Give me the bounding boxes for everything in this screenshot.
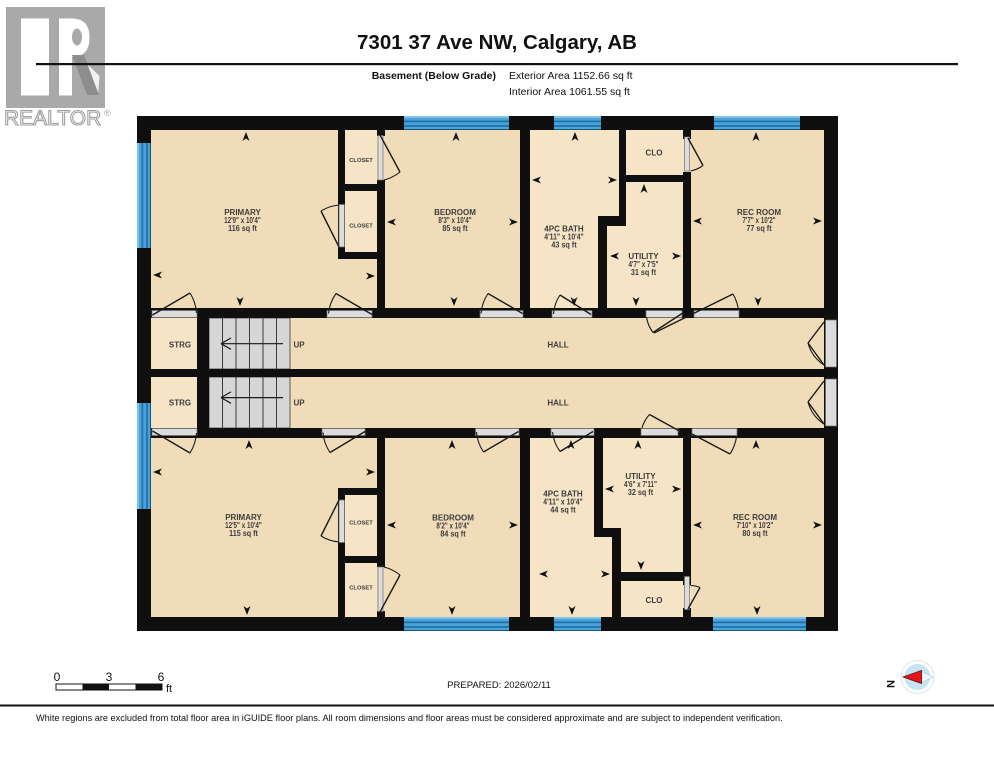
svg-text:77 sq ft: 77 sq ft: [746, 224, 771, 233]
svg-text:PREPARED: 2026/02/11: PREPARED: 2026/02/11: [447, 680, 551, 691]
svg-text:84 sq ft: 84 sq ft: [440, 530, 465, 539]
svg-text:85 sq ft: 85 sq ft: [442, 224, 467, 233]
svg-text:0: 0: [54, 670, 61, 684]
svg-text:HALL: HALL: [547, 399, 568, 408]
svg-text:®: ®: [104, 108, 111, 118]
svg-text:Basement (Below Grade): Basement (Below Grade): [372, 70, 496, 82]
svg-text:3: 3: [106, 670, 113, 684]
svg-text:43 sq ft: 43 sq ft: [551, 241, 576, 250]
svg-text:REALTOR: REALTOR: [4, 107, 101, 130]
svg-text:80 sq ft: 80 sq ft: [742, 529, 767, 538]
svg-text:CLOSET: CLOSET: [349, 158, 373, 164]
svg-text:CLO: CLO: [646, 596, 663, 605]
svg-text:ft: ft: [166, 683, 172, 695]
svg-text:N: N: [884, 680, 896, 688]
svg-text:STRG: STRG: [169, 399, 191, 408]
svg-text:White regions are excluded fro: White regions are excluded from total fl…: [36, 713, 783, 723]
svg-text:Interior Area 1061.55 sq ft: Interior Area 1061.55 sq ft: [509, 86, 630, 98]
svg-text:115 sq ft: 115 sq ft: [229, 529, 258, 538]
svg-text:UP: UP: [293, 341, 305, 350]
svg-text:7301 37 Ave NW, Calgary, AB: 7301 37 Ave NW, Calgary, AB: [357, 31, 637, 54]
svg-text:31 sq ft: 31 sq ft: [631, 268, 656, 277]
svg-text:116 sq ft: 116 sq ft: [228, 224, 257, 233]
svg-text:Exterior Area 1152.66 sq ft: Exterior Area 1152.66 sq ft: [509, 70, 633, 82]
svg-text:CLO: CLO: [646, 149, 663, 158]
svg-text:44 sq ft: 44 sq ft: [550, 506, 575, 515]
svg-text:CLOSET: CLOSET: [349, 224, 373, 230]
svg-text:CLOSET: CLOSET: [349, 521, 373, 527]
svg-text:STRG: STRG: [169, 341, 191, 350]
svg-text:6: 6: [158, 670, 165, 684]
svg-text:32 sq ft: 32 sq ft: [628, 488, 653, 497]
svg-text:UP: UP: [293, 399, 305, 408]
svg-text:HALL: HALL: [547, 341, 568, 350]
svg-text:CLOSET: CLOSET: [349, 586, 373, 592]
